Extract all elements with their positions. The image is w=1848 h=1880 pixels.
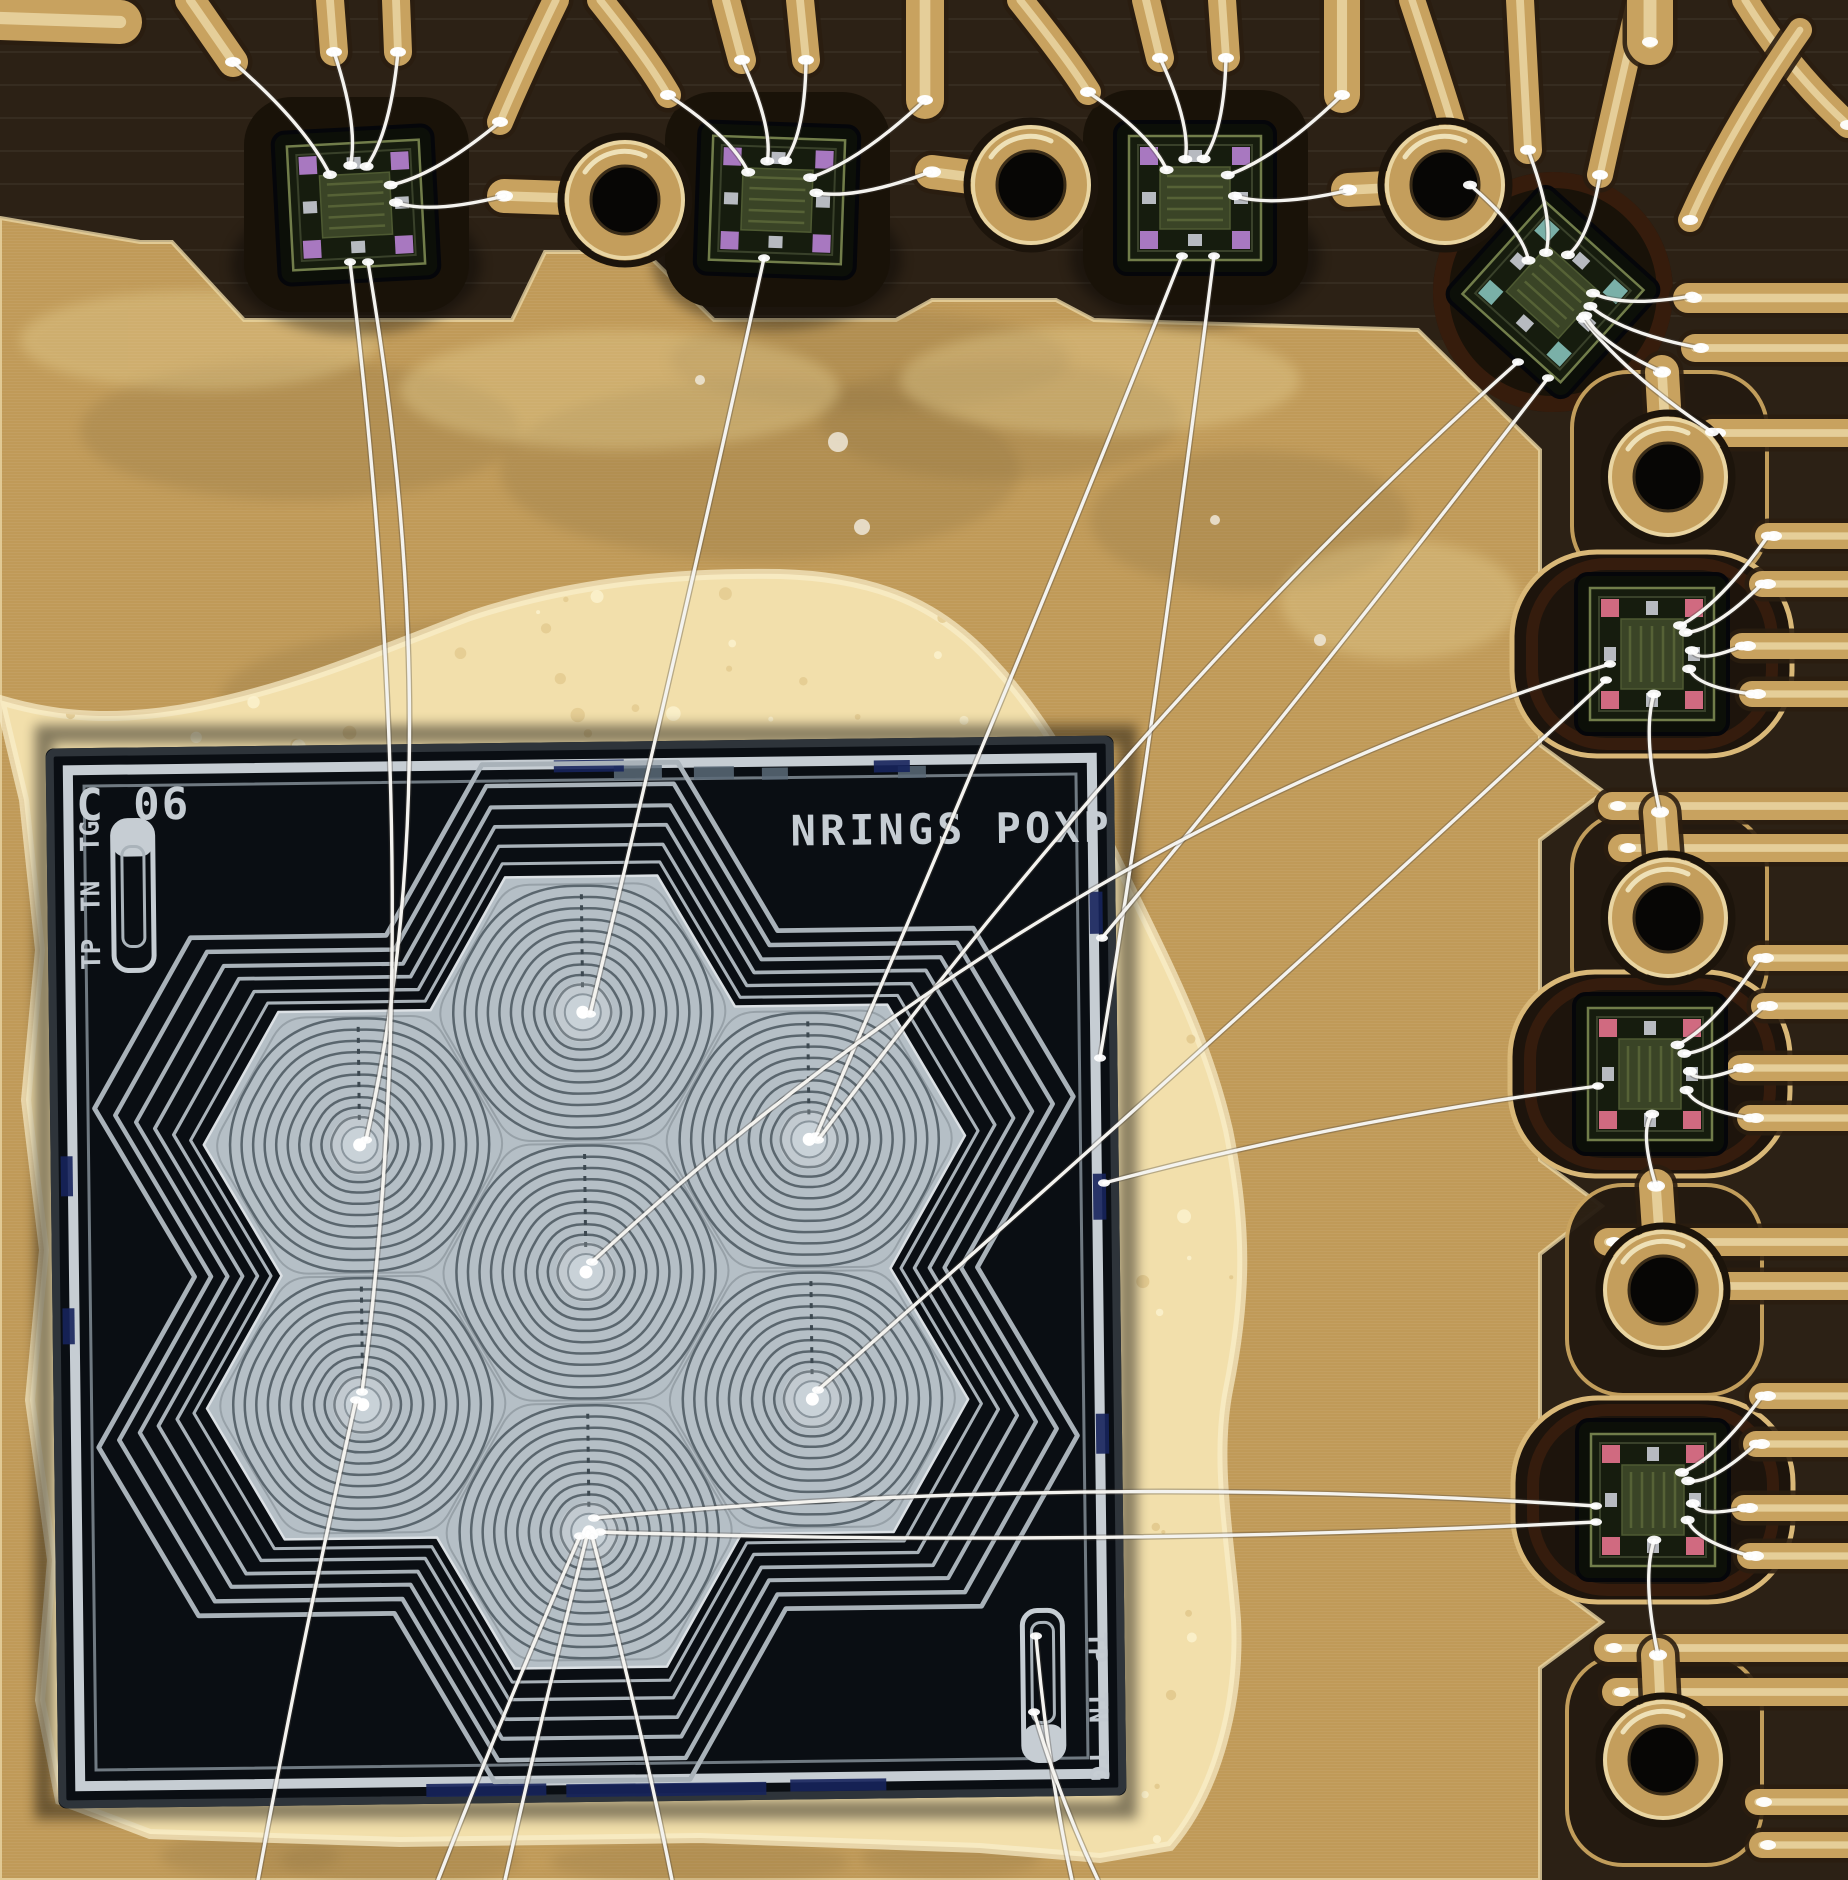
pcb-scene: C 06NRINGS POXPTGTNTPTPTNTG [0,0,1848,1880]
chip-corner-pad [1232,231,1250,249]
chip-corner-pad [1599,1111,1617,1129]
chip-corner-pad [1683,1111,1701,1129]
bonded-chip-6 [1574,994,1726,1154]
alignment-label-tp: TP [77,939,107,971]
alignment-label-tn: TN [76,881,106,913]
chip-corner-pad [1686,1537,1704,1555]
chip-corner-pad [395,235,414,254]
chip-corner-pad [1685,691,1703,709]
chip-corner-pad [1602,1445,1620,1463]
chip-corner-pad [303,240,322,259]
alignment-label-tg: TG [1083,1750,1113,1782]
alignment-label-tg: TG [75,821,105,853]
alignment-label-tp: TP [1081,1632,1111,1664]
chip-corner-pad [1232,147,1250,165]
main-die: C 06NRINGS POXPTGTNTPTPTNTG [46,736,1127,1809]
chip-corner-pad [1601,691,1619,709]
chip-corner-pad [1599,1019,1617,1037]
alignment-label-tn: TN [1082,1692,1112,1724]
chip-corner-pad [390,151,409,170]
chip-corner-pad [1601,599,1619,617]
pcb-macro-photo: C 06NRINGS POXPTGTNTPTPTNTG [0,0,1848,1880]
chip-corner-pad [1140,231,1158,249]
chip-corner-pad [812,234,831,253]
chip-corner-pad [1602,1537,1620,1555]
chip-corner-pad [720,231,739,250]
bonded-chip-2 [694,121,859,278]
chip-corner-pad [298,156,317,175]
